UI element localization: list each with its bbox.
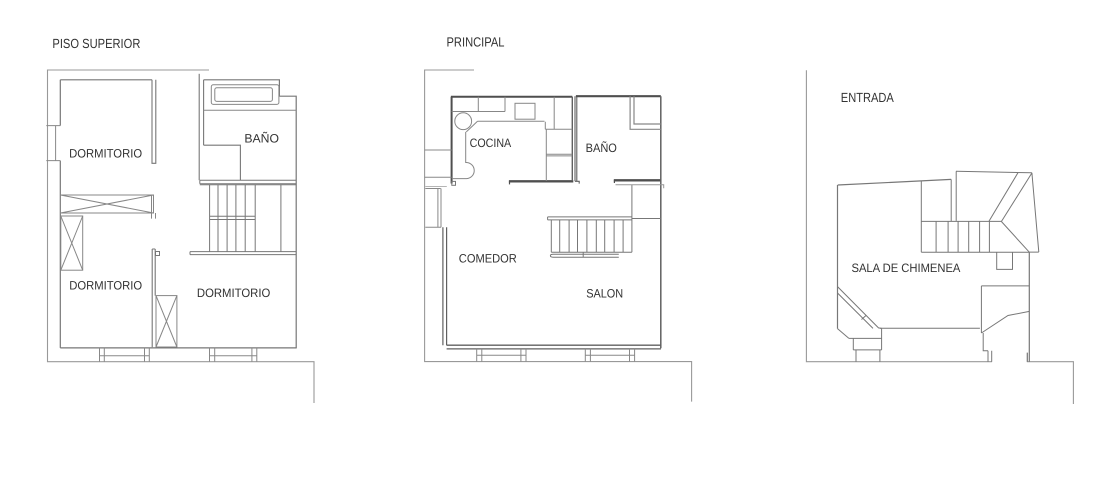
svg-text:COMEDOR: COMEDOR — [459, 252, 517, 266]
svg-text:PISO SUPERIOR: PISO SUPERIOR — [52, 36, 140, 51]
svg-text:SALA DE CHIMENEA: SALA DE CHIMENEA — [852, 261, 962, 275]
svg-text:DORMITORIO: DORMITORIO — [69, 146, 142, 160]
svg-text:BAÑO: BAÑO — [244, 131, 279, 145]
svg-text:DORMITORIO: DORMITORIO — [69, 278, 142, 292]
svg-text:COCINA: COCINA — [470, 136, 512, 150]
svg-text:ENTRADA: ENTRADA — [841, 90, 894, 105]
svg-text:DORMITORIO: DORMITORIO — [197, 286, 270, 300]
svg-text:PRINCIPAL: PRINCIPAL — [447, 35, 505, 50]
svg-text:BAÑO: BAÑO — [586, 141, 617, 155]
svg-text:SALON: SALON — [586, 287, 623, 301]
